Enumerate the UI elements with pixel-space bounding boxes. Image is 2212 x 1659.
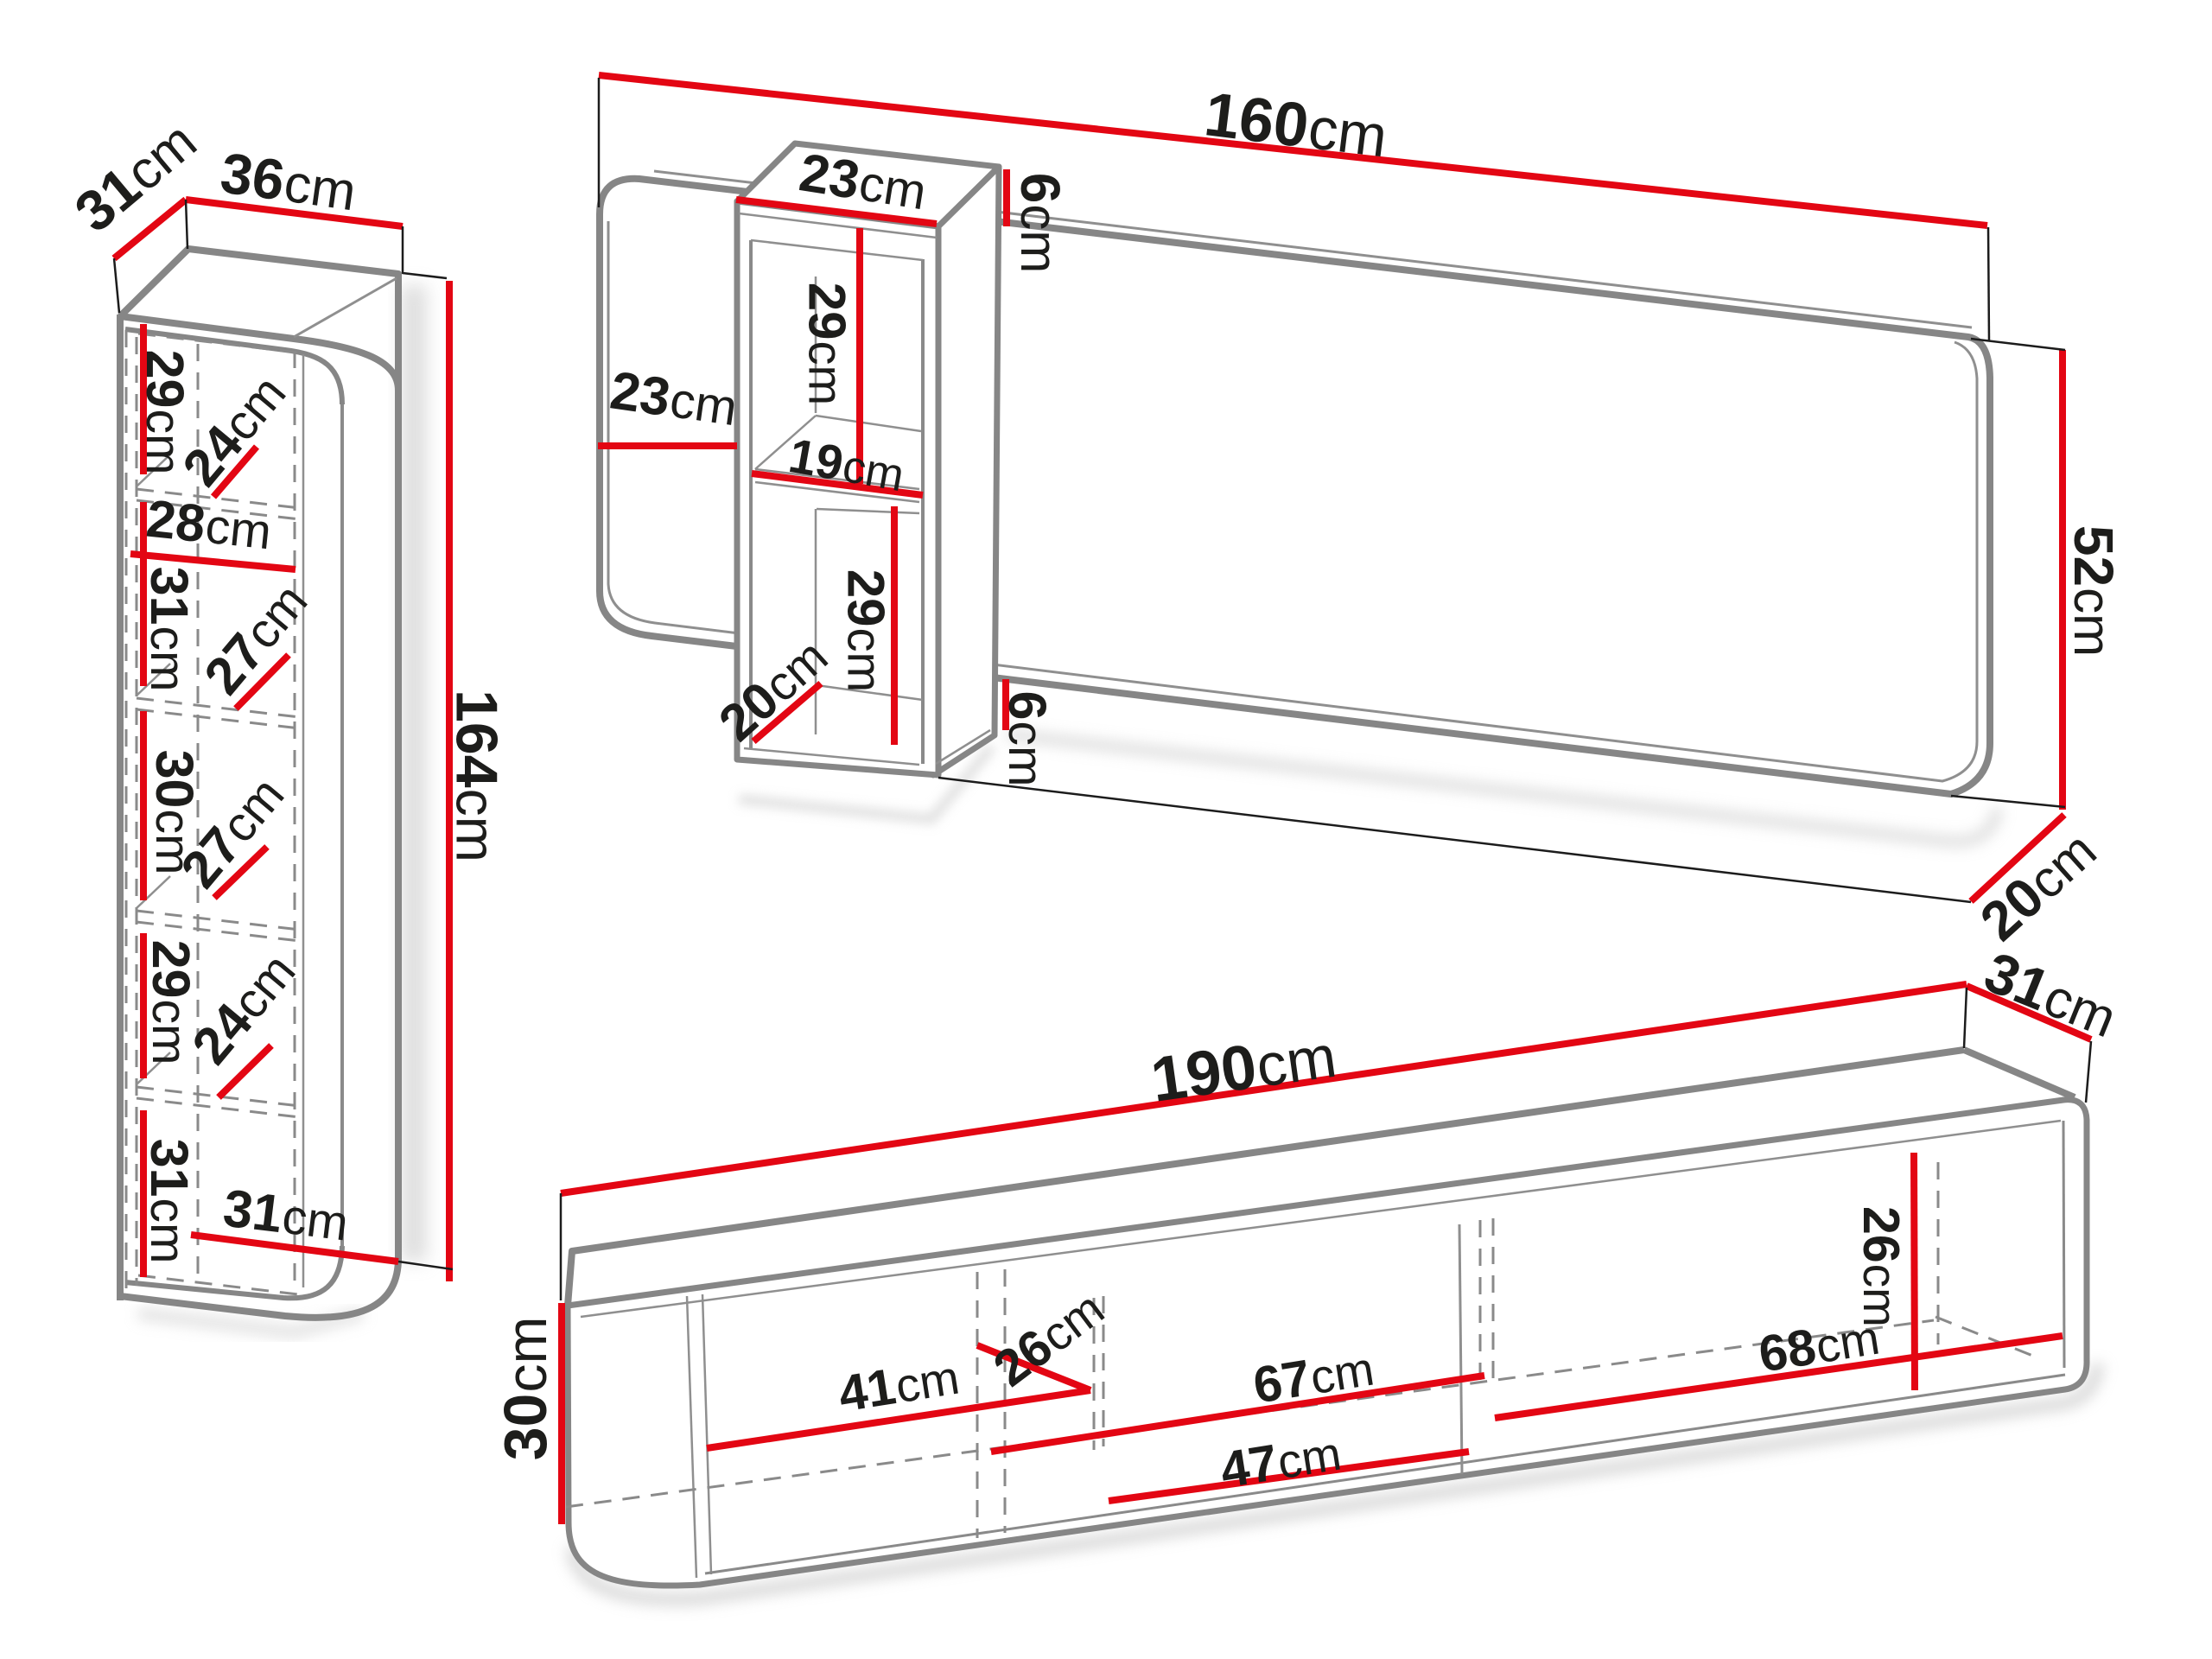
svg-text:6cm: 6cm — [1009, 173, 1071, 274]
svg-text:52cm: 52cm — [2063, 525, 2125, 657]
svg-text:31cm: 31cm — [140, 567, 199, 692]
svg-text:29cm: 29cm — [798, 283, 855, 405]
svg-text:29cm: 29cm — [836, 569, 894, 692]
svg-text:31cm: 31cm — [140, 1139, 199, 1264]
svg-text:6cm: 6cm — [998, 691, 1057, 787]
svg-text:26cm: 26cm — [1853, 1206, 1910, 1327]
svg-text:30cm: 30cm — [492, 1317, 559, 1461]
svg-text:164cm: 164cm — [444, 690, 510, 862]
